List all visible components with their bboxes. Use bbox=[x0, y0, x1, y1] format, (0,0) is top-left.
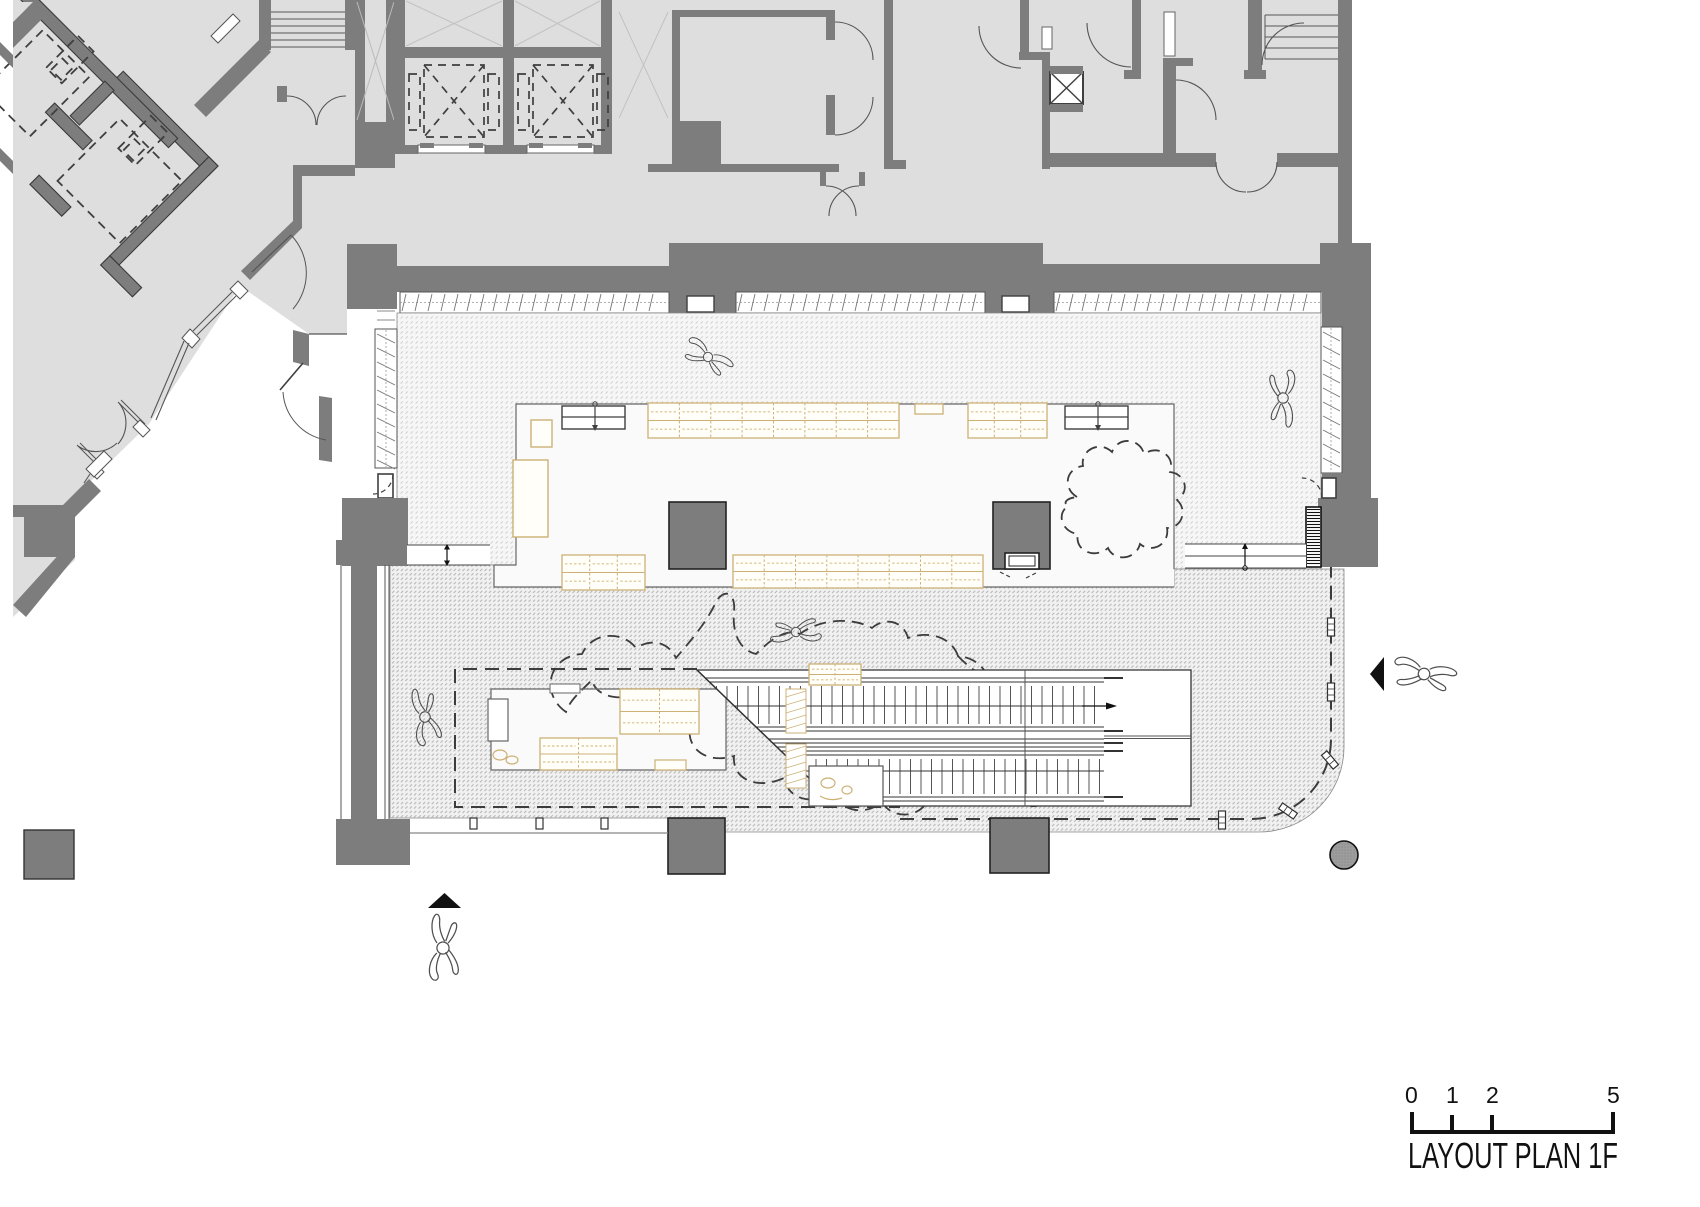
svg-text:5: 5 bbox=[1607, 1082, 1620, 1108]
svg-text:1: 1 bbox=[1446, 1082, 1459, 1108]
svg-text:LAYOUT PLAN 1F: LAYOUT PLAN 1F bbox=[1408, 1135, 1618, 1176]
svg-text:0: 0 bbox=[1405, 1082, 1418, 1108]
svg-text:2: 2 bbox=[1486, 1082, 1499, 1108]
